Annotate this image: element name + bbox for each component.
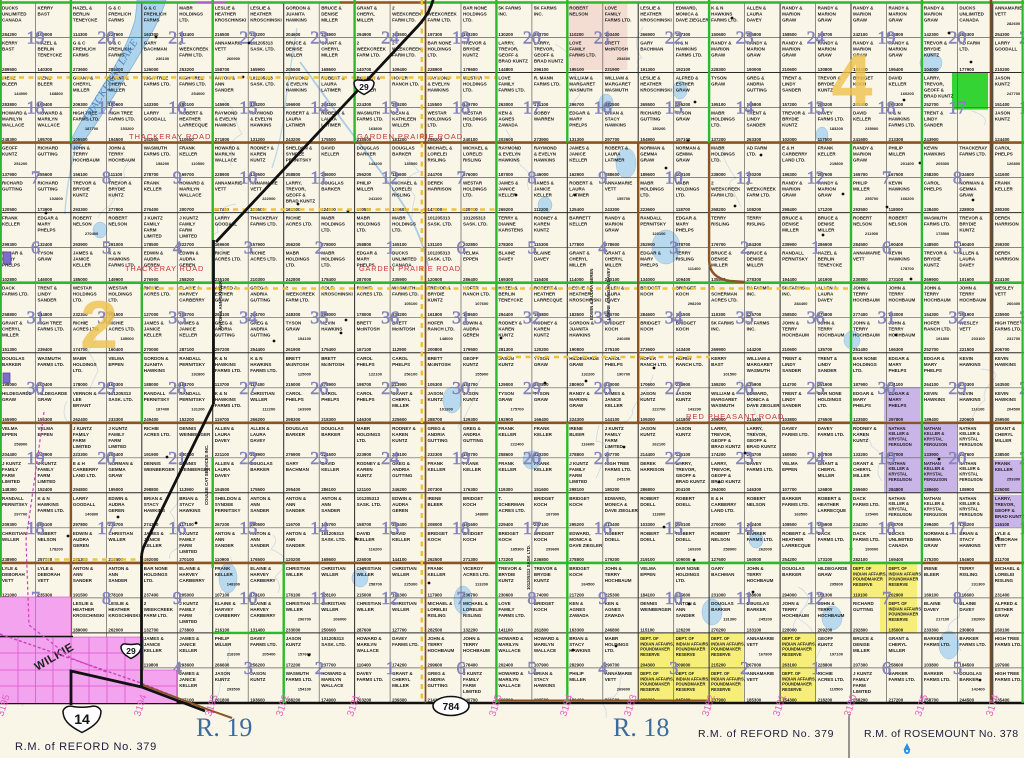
- svg-text:4: 4: [598, 658, 607, 678]
- svg-text:224100: 224100: [995, 277, 1010, 282]
- svg-text:13: 13: [807, 518, 825, 538]
- svg-text:266900: 266900: [640, 32, 655, 37]
- svg-text:174900: 174900: [321, 697, 336, 702]
- svg-text:131100: 131100: [428, 242, 443, 247]
- svg-text:149900: 149900: [108, 277, 123, 282]
- svg-text:8: 8: [527, 168, 536, 188]
- svg-text:112900: 112900: [392, 347, 407, 352]
- svg-text:R.M. of REFORD No. 379: R.M. of REFORD No. 379: [698, 728, 834, 740]
- svg-text:211900: 211900: [865, 231, 879, 236]
- svg-text:146300: 146300: [747, 487, 762, 492]
- svg-text:7: 7: [31, 168, 40, 188]
- svg-text:192000: 192000: [144, 557, 159, 562]
- svg-text:126800: 126800: [818, 487, 833, 492]
- svg-text:158700: 158700: [215, 67, 230, 72]
- svg-text:10: 10: [665, 588, 683, 608]
- svg-text:165900: 165900: [250, 67, 265, 72]
- svg-text:JASONKUNTZ: JASONKUNTZ: [286, 636, 302, 647]
- svg-text:166300: 166300: [889, 347, 904, 352]
- svg-text:197300: 197300: [428, 32, 443, 37]
- svg-text:3: 3: [244, 658, 253, 678]
- svg-text:292800: 292800: [853, 627, 868, 632]
- svg-text:141100: 141100: [498, 627, 513, 632]
- svg-text:239300: 239300: [392, 697, 407, 702]
- svg-text:179200: 179200: [605, 557, 620, 562]
- svg-text:262100: 262100: [652, 441, 666, 446]
- svg-text:253200: 253200: [179, 67, 194, 72]
- svg-text:111400: 111400: [688, 266, 702, 271]
- svg-text:RED PHEASANT ROAD: RED PHEASANT ROAD: [686, 412, 784, 421]
- svg-text:242100: 242100: [853, 32, 868, 37]
- svg-text:176100: 176100: [286, 592, 301, 597]
- svg-text:173500: 173500: [936, 231, 950, 236]
- svg-text:222400: 222400: [510, 441, 524, 446]
- svg-text:29: 29: [126, 646, 136, 656]
- svg-text:129300: 129300: [463, 417, 478, 422]
- svg-text:108900: 108900: [959, 487, 974, 492]
- svg-text:GARDEN PRAIRIE ROAD: GARDEN PRAIRIE ROAD: [359, 264, 461, 273]
- svg-text:287100: 287100: [179, 347, 194, 352]
- svg-text:126200: 126200: [676, 627, 691, 632]
- svg-text:23: 23: [310, 28, 328, 48]
- svg-text:201400: 201400: [901, 161, 915, 166]
- svg-text:258800: 258800: [2, 312, 17, 317]
- svg-text:32: 32: [523, 308, 541, 328]
- svg-text:RICHARDGUTTING: RICHARDGUTTING: [38, 181, 59, 192]
- svg-text:217200: 217200: [569, 592, 584, 597]
- svg-text:178700: 178700: [901, 266, 915, 271]
- svg-text:33: 33: [168, 308, 186, 328]
- svg-text:211700: 211700: [995, 557, 1010, 562]
- svg-text:249400: 249400: [144, 417, 159, 422]
- svg-text:298200: 298200: [688, 301, 702, 306]
- svg-text:101600: 101600: [959, 277, 974, 282]
- svg-text:269200: 269200: [498, 207, 513, 212]
- svg-text:24: 24: [381, 28, 399, 48]
- svg-text:196900: 196900: [286, 102, 301, 107]
- svg-text:286800: 286800: [640, 487, 655, 492]
- svg-text:5: 5: [102, 238, 111, 258]
- svg-text:282000: 282000: [971, 616, 985, 621]
- svg-text:240400: 240400: [617, 336, 631, 341]
- svg-text:9: 9: [173, 168, 182, 188]
- svg-text:LORNE & MEGAN DAVEY: LORNE & MEGAN DAVEY: [606, 268, 611, 320]
- svg-text:297700: 297700: [605, 137, 620, 142]
- svg-text:160500: 160500: [782, 452, 797, 457]
- svg-text:6: 6: [457, 238, 466, 258]
- svg-text:105300: 105300: [428, 382, 443, 387]
- svg-text:131400: 131400: [250, 627, 265, 632]
- svg-text:169100: 169100: [924, 592, 939, 597]
- svg-text:270100: 270100: [179, 557, 194, 562]
- svg-text:154300: 154300: [924, 312, 939, 317]
- svg-text:154900: 154900: [640, 137, 655, 142]
- svg-text:187700: 187700: [85, 126, 99, 131]
- svg-text:175400: 175400: [321, 347, 336, 352]
- svg-text:105500: 105500: [73, 137, 88, 142]
- svg-text:269900: 269900: [711, 347, 726, 352]
- svg-text:144100: 144100: [392, 557, 407, 562]
- svg-text:252700: 252700: [924, 347, 939, 352]
- svg-text:18: 18: [452, 518, 470, 538]
- svg-text:RICHARDGUTTING: RICHARDGUTTING: [853, 601, 874, 612]
- svg-text:170600: 170600: [640, 382, 655, 387]
- svg-text:IRENEBLEER: IRENEBLEER: [428, 496, 444, 507]
- svg-text:218200: 218200: [818, 697, 833, 702]
- svg-text:248300: 248300: [2, 137, 17, 142]
- svg-text:160200: 160200: [901, 91, 915, 96]
- svg-text:169300: 169300: [498, 277, 513, 282]
- svg-text:294400: 294400: [498, 312, 513, 317]
- svg-text:JASONKUNTZ: JASONKUNTZ: [995, 76, 1011, 87]
- svg-text:273600: 273600: [640, 347, 655, 352]
- svg-text:280900: 280900: [569, 382, 584, 387]
- svg-text:19: 19: [27, 448, 45, 468]
- svg-text:36: 36: [381, 308, 399, 328]
- svg-text:ROBERTNELSON: ROBERTNELSON: [108, 216, 127, 227]
- svg-text:258200: 258200: [179, 277, 194, 282]
- svg-text:13: 13: [807, 98, 825, 118]
- svg-text:DOUGLASBARKER: DOUGLASBARKER: [782, 566, 805, 577]
- svg-text:THACKERAY ROAD: THACKERAY ROAD: [125, 264, 204, 273]
- svg-text:228300: 228300: [711, 67, 726, 72]
- svg-text:18: 18: [27, 98, 45, 118]
- svg-text:238900: 238900: [2, 557, 17, 562]
- svg-text:299600: 299600: [546, 546, 560, 551]
- svg-text:296700: 296700: [569, 102, 584, 107]
- svg-text:180200: 180200: [605, 487, 620, 492]
- svg-text:150600: 150600: [711, 32, 726, 37]
- svg-text:273800: 273800: [179, 627, 194, 632]
- svg-text:270200: 270200: [711, 627, 726, 632]
- svg-text:223600: 223600: [640, 207, 655, 212]
- svg-text:113200: 113200: [475, 581, 489, 586]
- svg-text:179500: 179500: [463, 347, 478, 352]
- svg-text:233300: 233300: [108, 417, 123, 422]
- svg-text:121100: 121100: [357, 487, 372, 492]
- svg-text:6: 6: [31, 238, 40, 258]
- svg-text:269600: 269600: [617, 686, 631, 691]
- svg-text:195400: 195400: [889, 67, 904, 72]
- svg-text:WILLIAM &MARGARETWASMUTH: WILLIAM &MARGARETWASMUTH: [711, 391, 737, 408]
- svg-text:IRENEBLEER: IRENEBLEER: [924, 566, 940, 577]
- svg-text:WILLIAM &MARGARETWASMUTH: WILLIAM &MARGARETWASMUTH: [569, 76, 595, 93]
- svg-text:2: 2: [80, 287, 118, 363]
- svg-text:273900: 273900: [534, 137, 549, 142]
- svg-text:GARDEN PRAIRIE ROAD: GARDEN PRAIRIE ROAD: [357, 132, 463, 141]
- svg-text:109300: 109300: [640, 417, 655, 422]
- svg-text:131300: 131300: [569, 137, 584, 142]
- svg-text:VELMAEPPEN: VELMAEPPEN: [782, 461, 799, 472]
- svg-text:CAROLPHELPS: CAROLPHELPS: [357, 391, 375, 402]
- svg-text:14: 14: [736, 98, 754, 118]
- svg-text:BLAINEDAVEY: BLAINEDAVEY: [498, 251, 515, 262]
- svg-text:221900: 221900: [605, 67, 620, 72]
- svg-text:277400: 277400: [853, 312, 868, 317]
- svg-text:191800: 191800: [936, 336, 950, 341]
- svg-text:224300: 224300: [357, 102, 372, 107]
- svg-text:107700: 107700: [782, 487, 797, 492]
- svg-text:194400: 194400: [782, 277, 797, 282]
- svg-text:127600: 127600: [711, 557, 726, 562]
- svg-text:297700: 297700: [14, 511, 28, 516]
- svg-text:254300: 254300: [995, 32, 1010, 37]
- svg-text:119800: 119800: [144, 662, 159, 667]
- svg-text:CAROLPHELPS: CAROLPHELPS: [924, 181, 942, 192]
- svg-text:143400: 143400: [676, 347, 691, 352]
- svg-text:151300: 151300: [2, 347, 17, 352]
- svg-text:148500: 148500: [924, 242, 939, 247]
- svg-text:210200: 210200: [995, 67, 1010, 72]
- svg-text:240100: 240100: [463, 137, 478, 142]
- svg-text:204300: 204300: [640, 662, 655, 667]
- svg-text:192800: 192800: [191, 371, 205, 376]
- svg-text:228000: 228000: [959, 207, 974, 212]
- svg-text:278800: 278800: [569, 452, 584, 457]
- svg-text:293500: 293500: [853, 207, 868, 212]
- svg-text:8: 8: [102, 168, 111, 188]
- svg-text:284400: 284400: [794, 301, 808, 306]
- svg-text:254200: 254200: [782, 557, 797, 562]
- svg-text:298800: 298800: [144, 487, 159, 492]
- svg-text:195700: 195700: [38, 137, 53, 142]
- svg-text:117900: 117900: [428, 592, 443, 597]
- svg-text:133100: 133100: [747, 627, 762, 632]
- svg-text:GEOFFKUNTZ: GEOFFKUNTZ: [2, 146, 18, 157]
- svg-text:144100: 144100: [605, 417, 620, 422]
- svg-text:287000: 287000: [357, 277, 372, 282]
- svg-text:228900: 228900: [215, 172, 230, 177]
- svg-text:206000: 206000: [333, 616, 347, 621]
- svg-text:214400: 214400: [640, 452, 655, 457]
- svg-text:15: 15: [239, 518, 257, 538]
- svg-text:219800: 219800: [830, 161, 844, 166]
- svg-text:110900: 110900: [215, 557, 230, 562]
- svg-text:134000: 134000: [640, 277, 655, 282]
- svg-text:1: 1: [386, 238, 395, 258]
- svg-text:131300: 131300: [723, 616, 737, 621]
- svg-text:WASMUTHFARMS LTD.: WASMUTHFARMS LTD.: [286, 671, 313, 682]
- svg-text:148800: 148800: [475, 511, 489, 516]
- svg-text:1: 1: [811, 238, 820, 258]
- svg-text:219100: 219100: [640, 557, 655, 562]
- svg-text:3: 3: [669, 658, 678, 678]
- svg-text:114700: 114700: [782, 382, 797, 387]
- svg-text:215000: 215000: [357, 592, 372, 597]
- svg-text:5: 5: [953, 238, 962, 258]
- svg-text:DOUGLASBARKER: DOUGLASBARKER: [2, 356, 25, 367]
- svg-text:189600: 189600: [924, 487, 939, 492]
- svg-text:267200: 267200: [215, 522, 230, 527]
- svg-text:216500: 216500: [215, 32, 230, 37]
- svg-text:113800: 113800: [652, 511, 666, 516]
- svg-text:294000: 294000: [782, 592, 797, 597]
- svg-text:7: 7: [457, 168, 466, 188]
- svg-text:110200: 110200: [569, 32, 584, 37]
- svg-text:RAYMOND& EVELYNHAWKINS: RAYMOND& EVELYNHAWKINS: [534, 146, 558, 163]
- svg-text:278800: 278800: [569, 557, 584, 562]
- svg-text:167800: 167800: [759, 651, 773, 656]
- svg-text:298100: 298100: [569, 487, 584, 492]
- svg-text:231700: 231700: [1007, 336, 1021, 341]
- svg-text:113700: 113700: [215, 382, 230, 387]
- svg-text:141600: 141600: [995, 172, 1010, 177]
- svg-text:178000: 178000: [357, 312, 372, 317]
- svg-text:276900: 276900: [144, 277, 159, 282]
- svg-text:JASONKUNTZ: JASONKUNTZ: [640, 426, 656, 437]
- svg-text:19: 19: [878, 28, 896, 48]
- svg-text:29: 29: [97, 378, 115, 398]
- svg-text:129000: 129000: [498, 382, 513, 387]
- svg-text:THACKERAYFARMS LTD.: THACKERAYFARMS LTD.: [250, 216, 278, 227]
- svg-text:ROBERTNELSON: ROBERTNELSON: [889, 216, 908, 227]
- svg-text:259300: 259300: [995, 242, 1010, 247]
- svg-text:189600: 189600: [640, 172, 655, 177]
- svg-text:283800: 283800: [2, 102, 17, 107]
- svg-text:262000: 262000: [759, 546, 773, 551]
- svg-text:210300: 210300: [250, 277, 265, 282]
- svg-text:31: 31: [452, 308, 470, 328]
- svg-text:168600: 168600: [321, 557, 336, 562]
- svg-text:176300: 176300: [463, 487, 478, 492]
- svg-text:163500: 163500: [794, 511, 808, 516]
- svg-text:22: 22: [239, 28, 257, 48]
- svg-text:185000: 185000: [73, 277, 88, 282]
- svg-text:175500: 175500: [321, 137, 336, 142]
- svg-text:298300: 298300: [286, 417, 301, 422]
- svg-text:282600: 282600: [1007, 21, 1021, 26]
- svg-text:270400: 270400: [85, 231, 99, 236]
- svg-text:HIGH TREEFARMS LTD.: HIGH TREEFARMS LTD.: [995, 321, 1022, 332]
- svg-text:233000: 233000: [286, 627, 301, 632]
- svg-text:140300: 140300: [38, 67, 53, 72]
- svg-text:WASMUTHFARMS LTD.: WASMUTHFARMS LTD.: [38, 356, 65, 367]
- svg-text:178000: 178000: [73, 382, 88, 387]
- svg-text:103800: 103800: [782, 417, 797, 422]
- svg-text:210600: 210600: [782, 347, 797, 352]
- svg-text:5: 5: [527, 238, 536, 258]
- svg-text:185000: 185000: [120, 336, 134, 341]
- svg-text:237400: 237400: [144, 592, 159, 597]
- svg-text:185300: 185300: [510, 546, 524, 551]
- svg-text:30: 30: [878, 378, 896, 398]
- svg-text:254400: 254400: [250, 347, 265, 352]
- svg-text:DOUGLASBARKER: DOUGLASBARKER: [286, 426, 309, 437]
- svg-text:162900: 162900: [569, 172, 584, 177]
- svg-text:133200: 133200: [853, 452, 868, 457]
- svg-text:298400: 298400: [782, 207, 797, 212]
- svg-text:18: 18: [878, 518, 896, 538]
- svg-text:222700: 222700: [652, 406, 666, 411]
- svg-text:5: 5: [527, 658, 536, 678]
- svg-text:281300: 281300: [498, 347, 513, 352]
- svg-text:20: 20: [523, 448, 541, 468]
- svg-text:16: 16: [168, 98, 186, 118]
- svg-text:277800: 277800: [108, 207, 123, 212]
- svg-text:144200: 144200: [747, 347, 762, 352]
- svg-text:177800: 177800: [569, 242, 584, 247]
- svg-text:110300: 110300: [711, 312, 726, 317]
- svg-text:VELMAEPPEN: VELMAEPPEN: [38, 426, 55, 437]
- svg-text:157200: 157200: [782, 102, 797, 107]
- svg-text:168600: 168600: [321, 67, 336, 72]
- svg-text:264100: 264100: [924, 382, 939, 387]
- svg-text:154600: 154600: [959, 557, 974, 562]
- svg-text:286400: 286400: [463, 277, 478, 282]
- svg-text:236100: 236100: [156, 56, 170, 61]
- svg-text:14: 14: [310, 98, 328, 118]
- svg-text:242800: 242800: [286, 277, 301, 282]
- svg-text:225300: 225300: [404, 581, 418, 586]
- svg-text:209300: 209300: [2, 522, 17, 527]
- svg-text:35: 35: [310, 308, 328, 328]
- svg-text:173100: 173100: [818, 557, 833, 562]
- svg-text:252900: 252900: [640, 242, 655, 247]
- svg-text:175500: 175500: [250, 487, 265, 492]
- svg-text:265600: 265600: [853, 487, 868, 492]
- svg-text:284200: 284200: [2, 32, 17, 37]
- svg-text:230800: 230800: [959, 627, 974, 632]
- svg-text:20: 20: [948, 448, 966, 468]
- svg-text:230600: 230600: [498, 592, 513, 597]
- svg-text:271300: 271300: [463, 557, 478, 562]
- svg-text:31: 31: [878, 308, 896, 328]
- svg-text:109000: 109000: [676, 557, 691, 562]
- svg-text:293500: 293500: [227, 686, 241, 691]
- svg-text:299600: 299600: [428, 662, 443, 667]
- svg-text:101205313SASK. LTD.: 101205313SASK. LTD.: [250, 76, 275, 87]
- svg-text:191300: 191300: [640, 67, 655, 72]
- svg-text:190000: 190000: [747, 67, 762, 72]
- svg-text:23: 23: [736, 448, 754, 468]
- svg-text:10: 10: [239, 168, 257, 188]
- svg-text:150200: 150200: [652, 126, 666, 131]
- svg-text:107100: 107100: [215, 592, 230, 597]
- svg-text:8: 8: [102, 588, 111, 608]
- svg-text:101900: 101900: [818, 277, 833, 282]
- svg-text:166400: 166400: [534, 417, 549, 422]
- svg-text:101205313SASK. LTD.: 101205313SASK. LTD.: [357, 496, 382, 507]
- svg-text:CAROLPHELPS: CAROLPHELPS: [286, 391, 304, 402]
- svg-text:194500: 194500: [215, 487, 230, 492]
- svg-text:140700: 140700: [357, 67, 372, 72]
- svg-text:196300: 196300: [782, 172, 797, 177]
- svg-text:2: 2: [740, 658, 749, 678]
- svg-text:101200: 101200: [440, 406, 454, 411]
- svg-text:120100: 120100: [652, 231, 666, 236]
- svg-text:1: 1: [386, 658, 395, 678]
- svg-text:163800: 163800: [369, 126, 383, 131]
- svg-text:293900: 293900: [73, 242, 88, 247]
- svg-text:8: 8: [953, 588, 962, 608]
- svg-text:232300: 232300: [428, 452, 443, 457]
- svg-text:132200: 132200: [581, 371, 595, 376]
- svg-text:IRENEBLEER: IRENEBLEER: [569, 426, 585, 437]
- svg-text:184100: 184100: [640, 592, 655, 597]
- svg-text:109400: 109400: [392, 67, 407, 72]
- svg-text:297800: 297800: [73, 522, 88, 527]
- svg-text:246200: 246200: [392, 487, 407, 492]
- svg-text:204600: 204600: [286, 32, 301, 37]
- svg-text:24: 24: [381, 448, 399, 468]
- svg-text:13: 13: [381, 98, 399, 118]
- svg-text:204400: 204400: [2, 452, 17, 457]
- svg-text:175200: 175200: [924, 557, 939, 562]
- svg-text:12: 12: [381, 588, 399, 608]
- svg-text:243200: 243200: [286, 137, 301, 142]
- svg-text:1: 1: [811, 658, 820, 678]
- svg-text:16: 16: [594, 518, 612, 538]
